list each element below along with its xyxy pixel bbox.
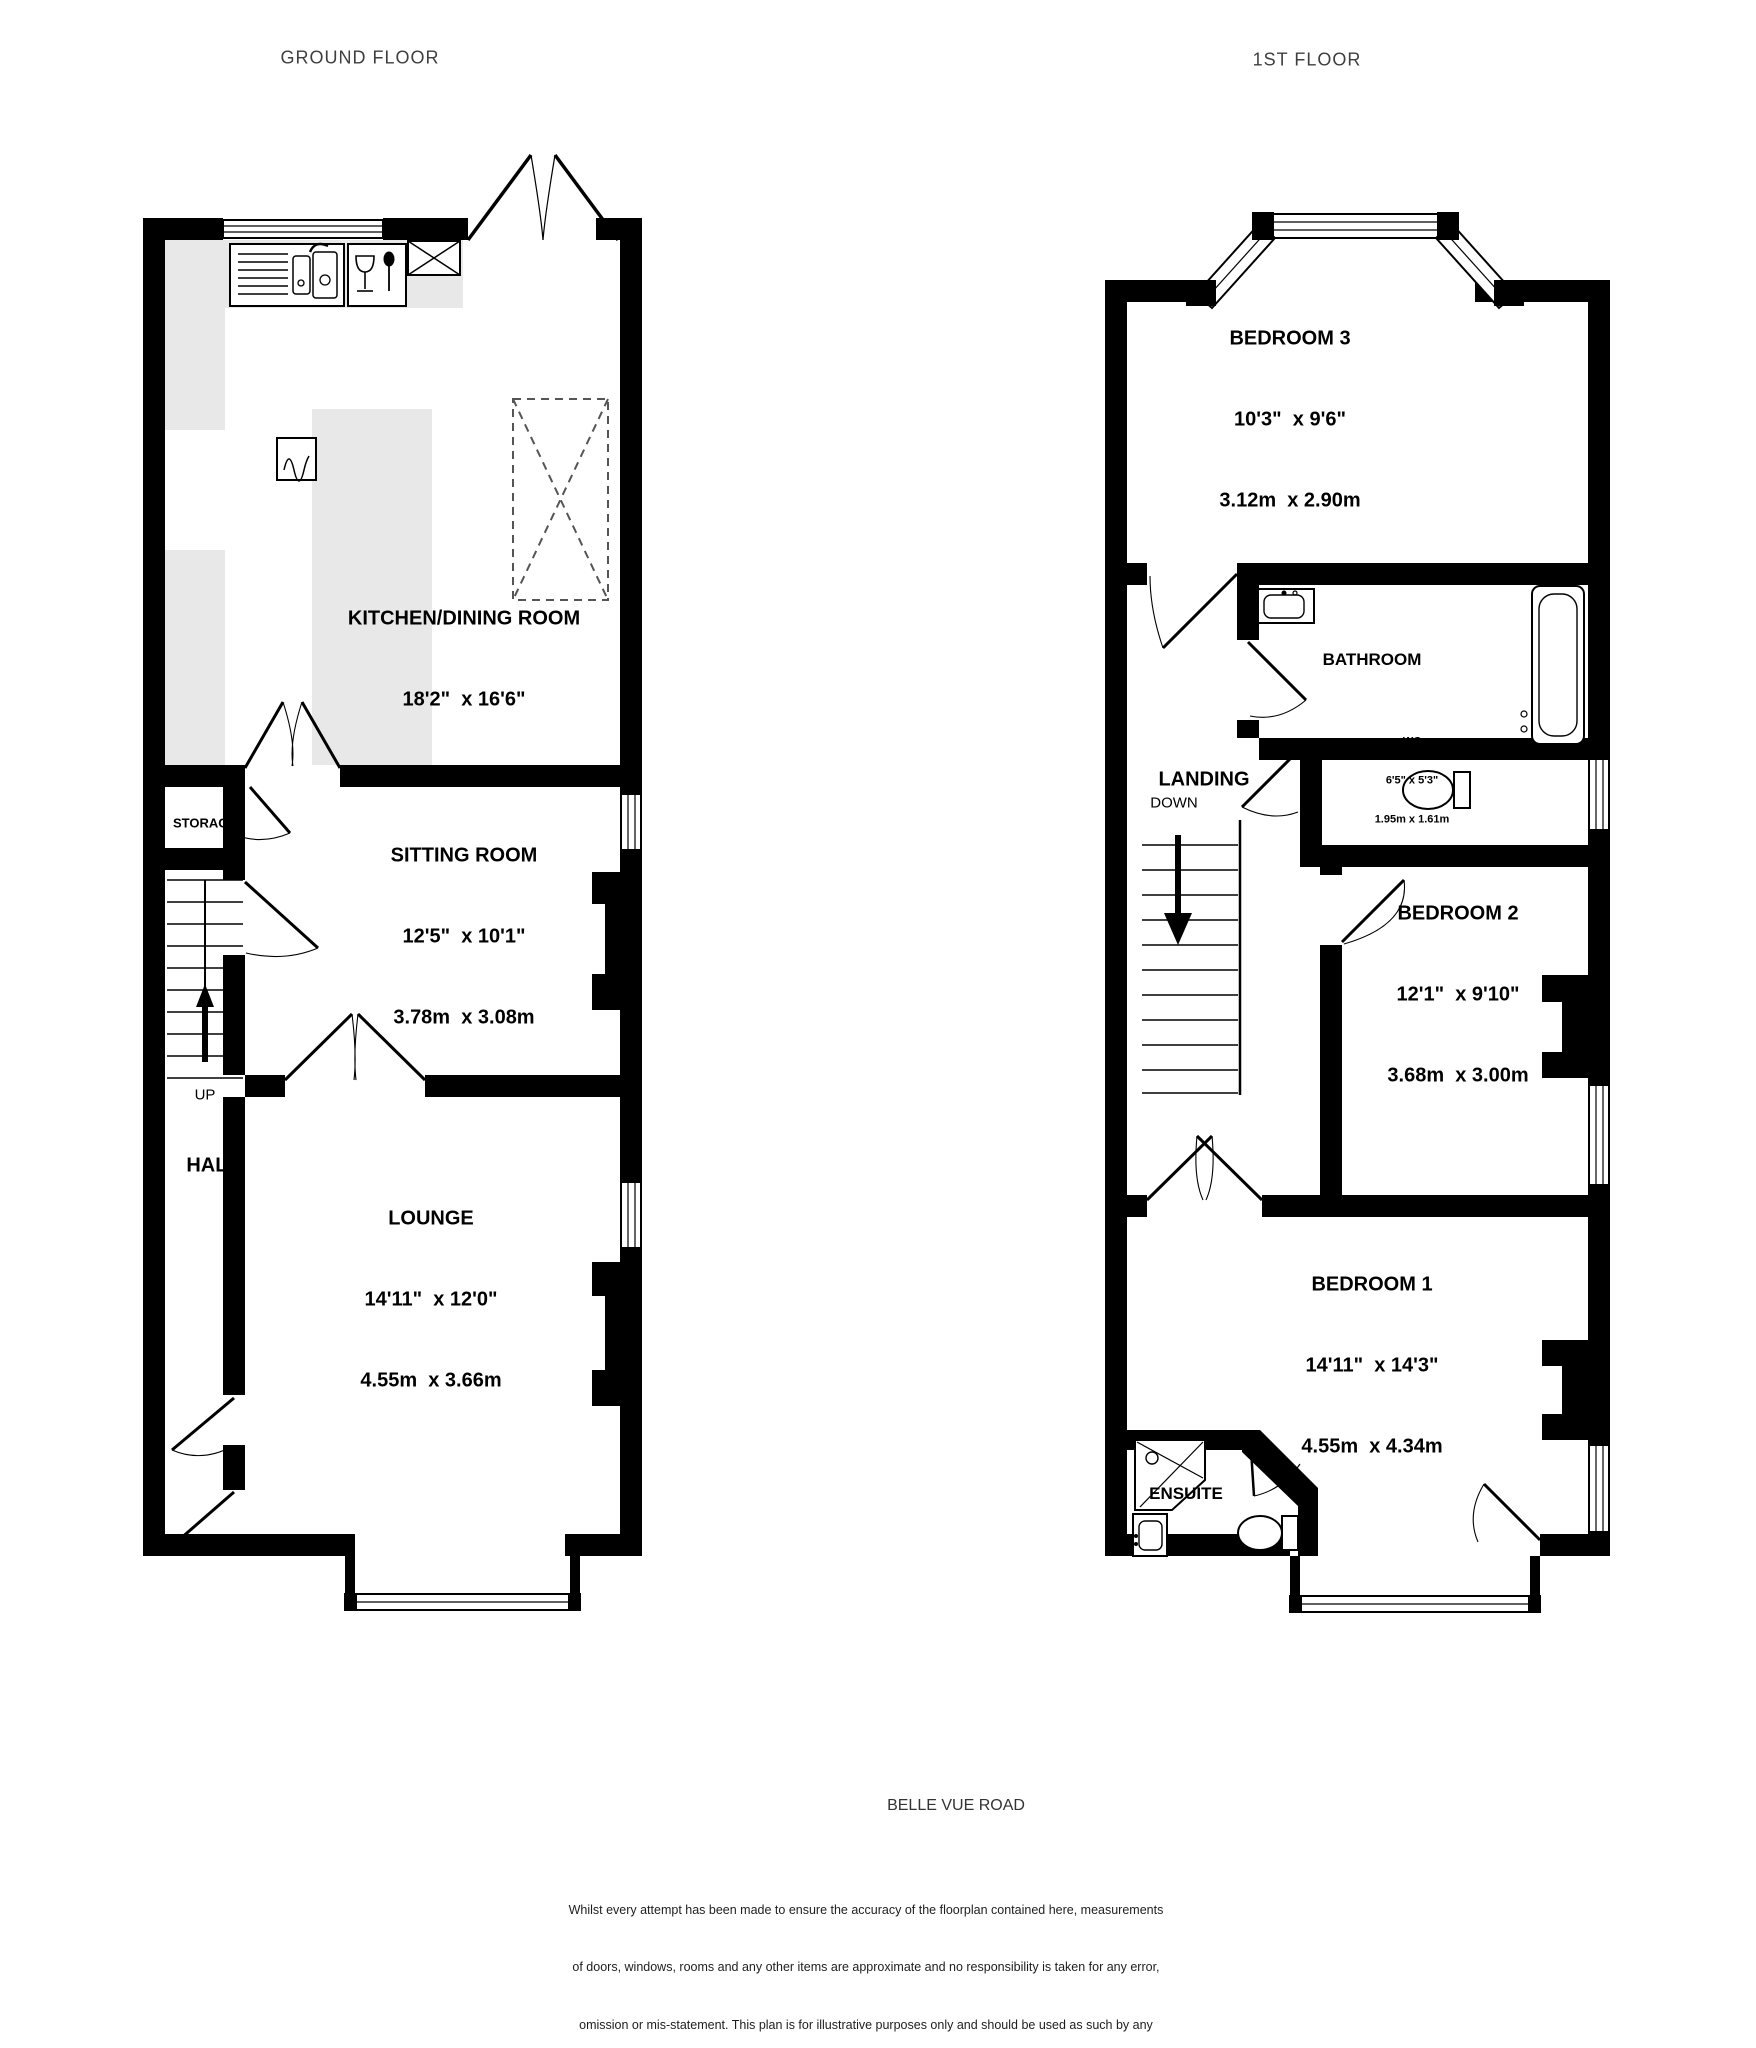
room-label-wc: WC 6'5" x 5'3" 1.95m x 1.61m — [1375, 710, 1450, 853]
up-arrow-icon — [196, 984, 214, 1007]
first-floor-title: 1ST FLOOR — [1253, 50, 1362, 71]
room-dims-metric: 1.95m x 1.61m — [1375, 814, 1450, 827]
room-dims-metric: 4.55m x 3.66m — [360, 1368, 501, 1395]
oven-icon — [277, 438, 316, 481]
room-name: BEDROOM 1 — [1301, 1272, 1442, 1299]
cooker-hob-icon — [408, 241, 460, 275]
room-dims-imperial: 12'5" x 10'1" — [391, 924, 538, 951]
staircase-down — [1142, 820, 1240, 1095]
bathroom-sink-icon — [1258, 589, 1314, 623]
disclaimer-line: of doors, windows, rooms and any other i… — [565, 1958, 1167, 1977]
room-name: BEDROOM 3 — [1219, 326, 1360, 353]
french-doors-icon — [468, 155, 618, 240]
room-label-sitting-room: SITTING ROOM 12'5" x 10'1" 3.78m x 3.08m — [391, 789, 538, 1086]
room-name: LOUNGE — [360, 1206, 501, 1233]
room-name: WC — [1375, 736, 1450, 749]
room-dims-metric: 3.12m x 2.90m — [1219, 488, 1360, 515]
storage-label: STORAGE — [173, 816, 237, 831]
ensuite-sink-icon — [1133, 1514, 1167, 1556]
street-name-label: BELLE VUE ROAD — [887, 1797, 1025, 1815]
room-label-lounge: LOUNGE 14'11" x 12'0" 4.55m x 3.66m — [360, 1152, 501, 1449]
room-name: KITCHEN/DINING ROOM — [348, 606, 580, 633]
sink-unit-icon — [230, 244, 344, 306]
room-dims-imperial: 12'1" x 9'10" — [1387, 982, 1528, 1009]
room-dims-imperial: 18'2" x 16'6" — [348, 687, 580, 714]
room-name: BEDROOM 2 — [1387, 901, 1528, 928]
room-dims-imperial: 14'11" x 12'0" — [360, 1287, 501, 1314]
room-dims-imperial: 14'11" x 14'3" — [1301, 1353, 1442, 1380]
room-name: SITTING ROOM — [391, 843, 538, 870]
dishwasher-icon — [348, 244, 406, 306]
bathroom-label: BATHROOM — [1323, 650, 1422, 670]
floorplan-page: GROUND FLOOR 1ST FLOOR KITCHEN/DINING RO… — [0, 0, 1756, 2048]
ensuite-toilet-icon — [1238, 1516, 1298, 1550]
room-label-bedroom3: BEDROOM 3 10'3" x 9'6" 3.12m x 2.90m — [1219, 272, 1360, 569]
room-label-bedroom2: BEDROOM 2 12'1" x 9'10" 3.68m x 3.00m — [1387, 847, 1528, 1144]
ground-floor-title: GROUND FLOOR — [280, 48, 439, 69]
disclaimer-text: Whilst every attempt has been made to en… — [565, 1862, 1167, 2048]
ground-chimney-breasts — [592, 872, 620, 1406]
up-label: UP — [195, 1087, 216, 1104]
hall-label: HALL — [186, 1155, 239, 1178]
room-dims-imperial: 10'3" x 9'6" — [1219, 407, 1360, 434]
landing-label: LANDING — [1158, 769, 1249, 792]
down-label: DOWN — [1150, 795, 1198, 812]
down-arrow-icon — [1164, 913, 1192, 945]
disclaimer-line: Whilst every attempt has been made to en… — [565, 1901, 1167, 1920]
ensuite-label: ENSUITE — [1149, 1484, 1223, 1504]
room-dims-metric: 4.55m x 4.34m — [1301, 1434, 1442, 1461]
room-dims-imperial: 6'5" x 5'3" — [1375, 775, 1450, 788]
bathtub-icon — [1521, 586, 1584, 744]
room-dims-metric: 3.68m x 3.00m — [1387, 1063, 1528, 1090]
room-dims-metric: 3.78m x 3.08m — [391, 1005, 538, 1032]
room-label-bedroom1: BEDROOM 1 14'11" x 14'3" 4.55m x 4.34m — [1301, 1218, 1442, 1515]
disclaimer-line: omission or mis-statement. This plan is … — [565, 2016, 1167, 2035]
